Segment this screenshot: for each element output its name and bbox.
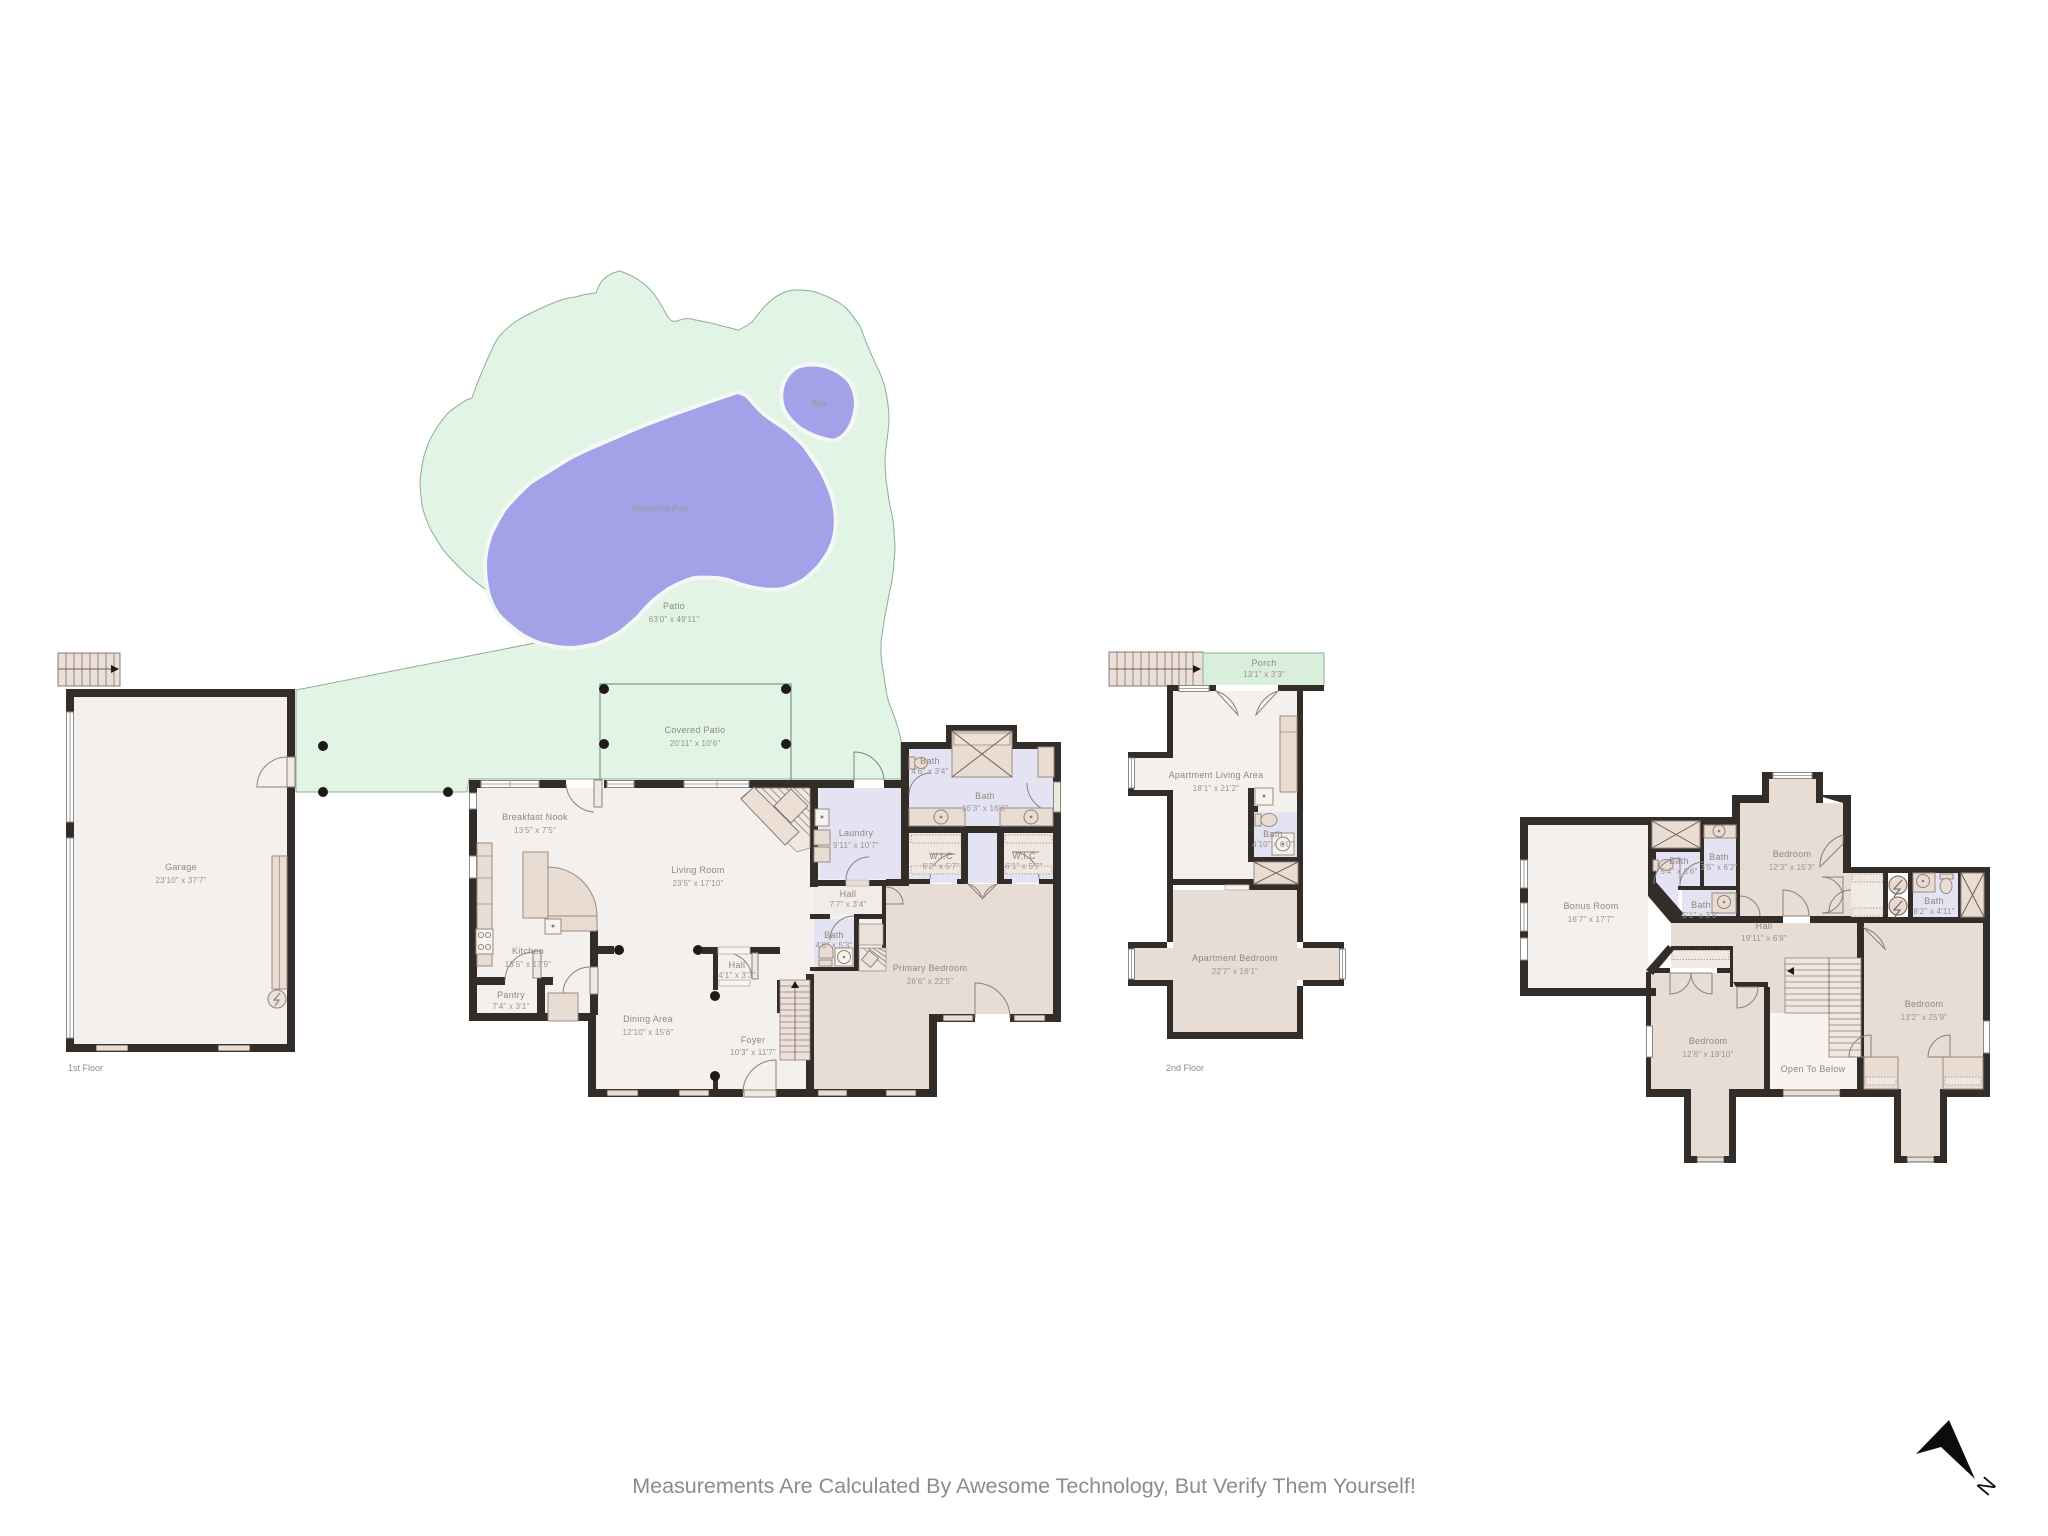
svg-text:12'10" x 15'6": 12'10" x 15'6" — [622, 1028, 673, 1037]
svg-text:Bath: Bath — [1691, 900, 1711, 910]
svg-text:10'3" x 11'7": 10'3" x 11'7" — [730, 1048, 776, 1057]
svg-text:13'5" x 7'5": 13'5" x 7'5" — [514, 826, 556, 835]
svg-text:Apartment Bedroom: Apartment Bedroom — [1192, 953, 1278, 963]
svg-text:4'8" x 5'3": 4'8" x 5'3" — [815, 941, 852, 950]
svg-text:Primary Bedroom: Primary Bedroom — [893, 963, 968, 973]
svg-text:22'7" x 16'1": 22'7" x 16'1" — [1212, 967, 1258, 976]
svg-text:6'1" x 5'7": 6'1" x 5'7" — [1005, 862, 1042, 871]
svg-text:Open To Below: Open To Below — [1781, 1064, 1846, 1074]
svg-text:Porch: Porch — [1251, 658, 1276, 668]
svg-text:16'3" x 16'6": 16'3" x 16'6" — [962, 804, 1008, 813]
svg-text:W.I.C: W.I.C — [1012, 851, 1036, 861]
svg-text:20'11" x 10'6": 20'11" x 10'6" — [670, 739, 721, 748]
svg-text:13'5" x 17'9": 13'5" x 17'9" — [505, 960, 551, 969]
svg-text:12'3" x 15'3": 12'3" x 15'3" — [1769, 863, 1815, 872]
svg-text:Breakfast Nook: Breakfast Nook — [502, 812, 568, 822]
svg-text:7'4" x 3'1": 7'4" x 3'1" — [492, 1002, 529, 1011]
svg-text:9'11" x 10'7": 9'11" x 10'7" — [833, 841, 879, 850]
svg-text:Bedroom: Bedroom — [1773, 849, 1812, 859]
svg-text:Bath: Bath — [824, 930, 844, 940]
svg-text:Laundry: Laundry — [839, 828, 874, 838]
svg-text:Covered Patio: Covered Patio — [665, 725, 726, 735]
svg-text:Bath: Bath — [1924, 896, 1944, 906]
svg-text:13'1" x 3'3": 13'1" x 3'3" — [1243, 670, 1285, 679]
svg-text:Bath: Bath — [920, 756, 940, 766]
svg-text:Dining Area: Dining Area — [623, 1014, 673, 1024]
svg-text:23'5" x 17'10": 23'5" x 17'10" — [672, 879, 723, 888]
svg-text:Bath: Bath — [975, 791, 995, 801]
svg-text:5'4" x 8'6": 5'4" x 8'6" — [1660, 867, 1697, 876]
svg-text:W.I.C: W.I.C — [929, 851, 953, 861]
svg-text:5'1" x 3'9": 5'1" x 3'9" — [1682, 911, 1719, 920]
svg-text:18'1" x 21'2": 18'1" x 21'2" — [1193, 784, 1239, 793]
svg-text:4'1" x 3'3": 4'1" x 3'3" — [718, 971, 755, 980]
svg-text:16'7" x 17'7": 16'7" x 17'7" — [1568, 915, 1614, 924]
svg-text:Apartment Living Area: Apartment Living Area — [1169, 770, 1264, 780]
svg-text:Kitchen: Kitchen — [512, 946, 544, 956]
svg-text:Foyer: Foyer — [741, 1035, 766, 1045]
svg-text:Garage: Garage — [165, 862, 197, 872]
svg-text:7'7" x 3'4": 7'7" x 3'4" — [829, 900, 866, 909]
svg-text:Bath: Bath — [1669, 856, 1689, 866]
svg-text:Hall: Hall — [1756, 921, 1773, 931]
svg-text:12'6" x 19'10": 12'6" x 19'10" — [1682, 1050, 1733, 1059]
svg-text:Hall: Hall — [840, 889, 857, 899]
svg-text:2nd Floor: 2nd Floor — [1166, 1063, 1204, 1073]
svg-text:19'11" x 6'8": 19'11" x 6'8" — [1741, 934, 1787, 943]
svg-text:4'10" x 6'0": 4'10" x 6'0" — [1252, 840, 1294, 849]
svg-text:Bonus Room: Bonus Room — [1563, 901, 1618, 911]
svg-text:4'6" x 3'4": 4'6" x 3'4" — [911, 767, 948, 776]
svg-text:6'2" x 5'7": 6'2" x 5'7" — [922, 862, 959, 871]
svg-text:63'0" x 49'11": 63'0" x 49'11" — [649, 615, 700, 624]
svg-text:Bedroom: Bedroom — [1905, 999, 1944, 1009]
svg-text:Pantry: Pantry — [497, 990, 525, 1000]
svg-text:3'5" x 6'2": 3'5" x 6'2" — [1700, 863, 1737, 872]
svg-text:8'2" x 4'11": 8'2" x 4'11" — [1913, 907, 1954, 916]
svg-text:1st Floor: 1st Floor — [68, 1063, 103, 1073]
svg-text:Bath: Bath — [1709, 852, 1729, 862]
svg-text:26'6" x 22'5": 26'6" x 22'5" — [907, 977, 953, 986]
svg-text:13'2" x 25'9": 13'2" x 25'9" — [1901, 1013, 1947, 1022]
svg-text:Spa: Spa — [812, 399, 827, 408]
svg-text:Hall: Hall — [729, 960, 746, 970]
svg-text:Bath: Bath — [1263, 829, 1283, 839]
svg-text:Measurements Are Calculated By: Measurements Are Calculated By Awesome T… — [632, 1474, 1416, 1498]
svg-text:23'10" x 37'7": 23'10" x 37'7" — [155, 876, 206, 885]
svg-text:Swimming Pool: Swimming Pool — [631, 504, 689, 513]
svg-text:Living Room: Living Room — [671, 865, 724, 875]
svg-text:Bedroom: Bedroom — [1689, 1036, 1728, 1046]
svg-text:Patio: Patio — [663, 601, 685, 611]
